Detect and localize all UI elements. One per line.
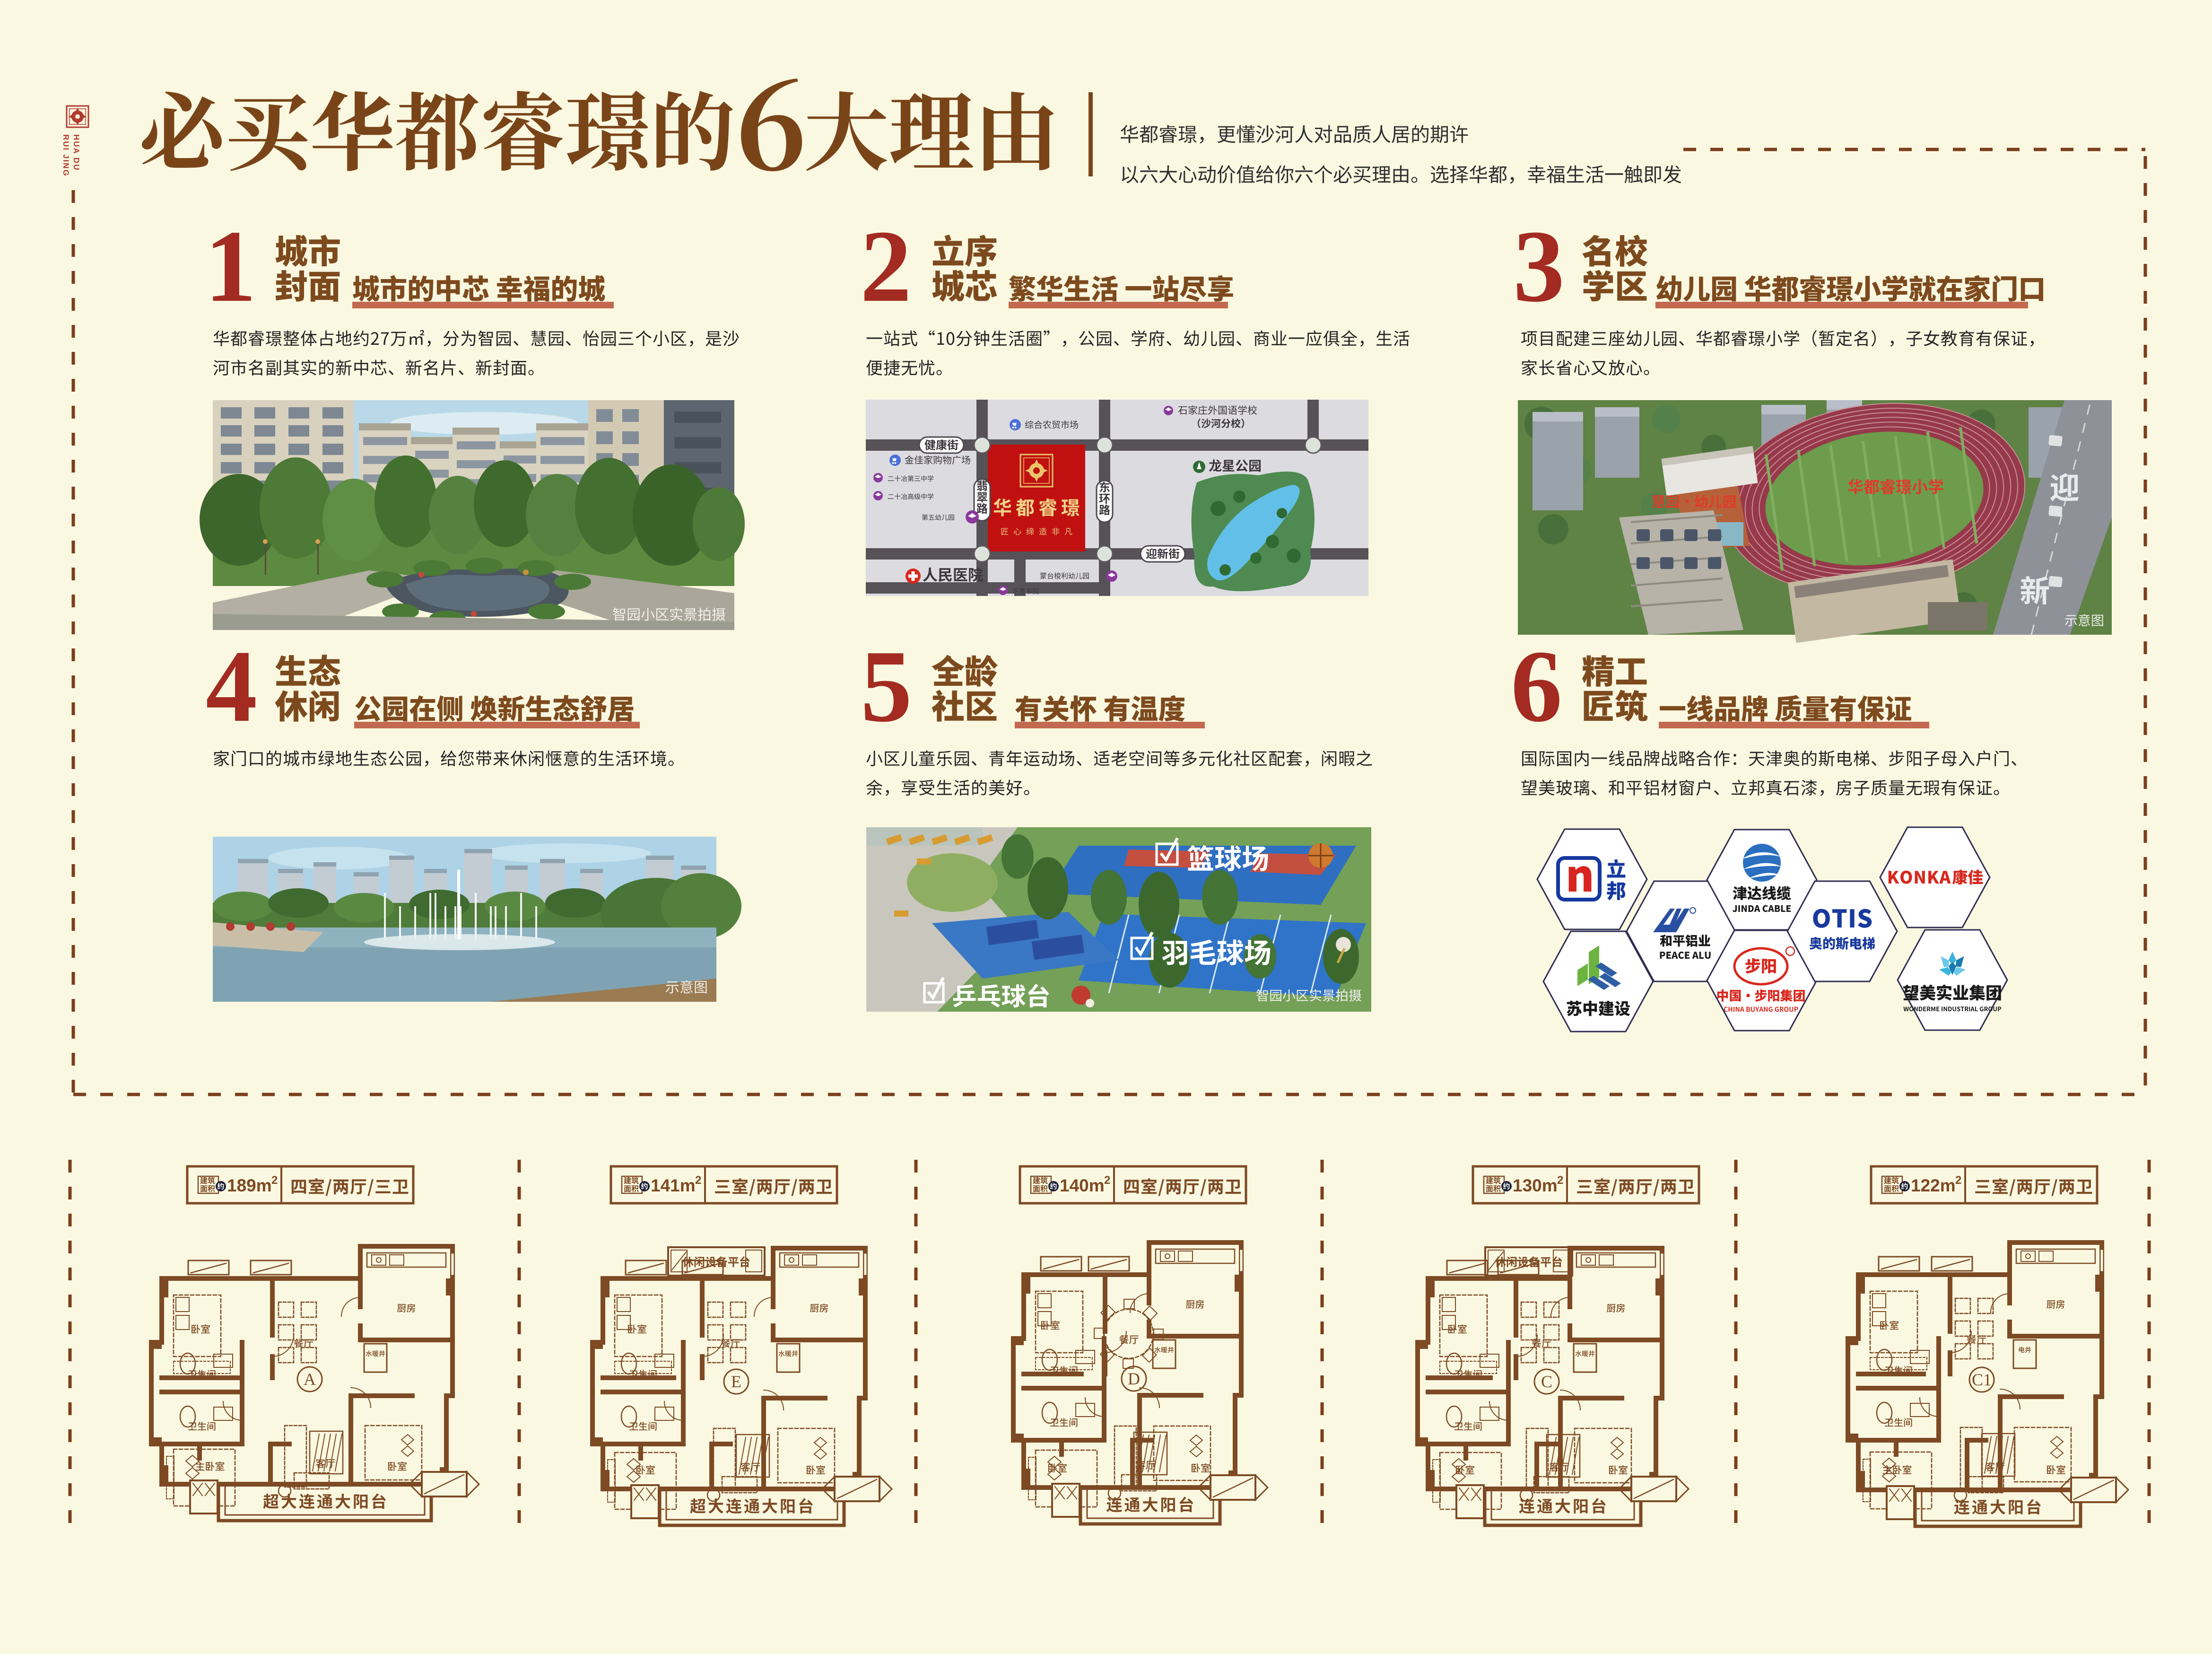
svg-text:130m: 130m <box>1513 1176 1558 1195</box>
svg-text:2: 2 <box>271 1174 278 1187</box>
svg-text:2: 2 <box>1955 1174 1961 1187</box>
svg-text:A: A <box>304 1370 316 1389</box>
svg-text:2: 2 <box>1557 1174 1563 1187</box>
svg-text:189m: 189m <box>227 1176 272 1195</box>
svg-text:E: E <box>731 1372 741 1391</box>
svg-text:4: 4 <box>206 630 257 744</box>
svg-text:C1: C1 <box>1972 1370 1992 1389</box>
svg-text:141m: 141m <box>651 1176 696 1195</box>
svg-text:140m: 140m <box>1060 1176 1105 1195</box>
svg-text:2: 2 <box>1104 1174 1110 1187</box>
svg-text:2: 2 <box>695 1174 701 1187</box>
svg-text:1: 1 <box>205 210 256 324</box>
svg-text:2: 2 <box>860 210 912 324</box>
svg-text:HUA DU: HUA DU <box>72 134 81 171</box>
svg-text:5: 5 <box>861 630 912 744</box>
svg-text:3: 3 <box>1513 210 1565 324</box>
svg-text:D: D <box>1128 1369 1140 1388</box>
svg-text:122m: 122m <box>1911 1176 1956 1195</box>
svg-text:RUI JING: RUI JING <box>61 134 70 177</box>
svg-text:C: C <box>1541 1372 1552 1391</box>
svg-text:6: 6 <box>1511 630 1562 744</box>
